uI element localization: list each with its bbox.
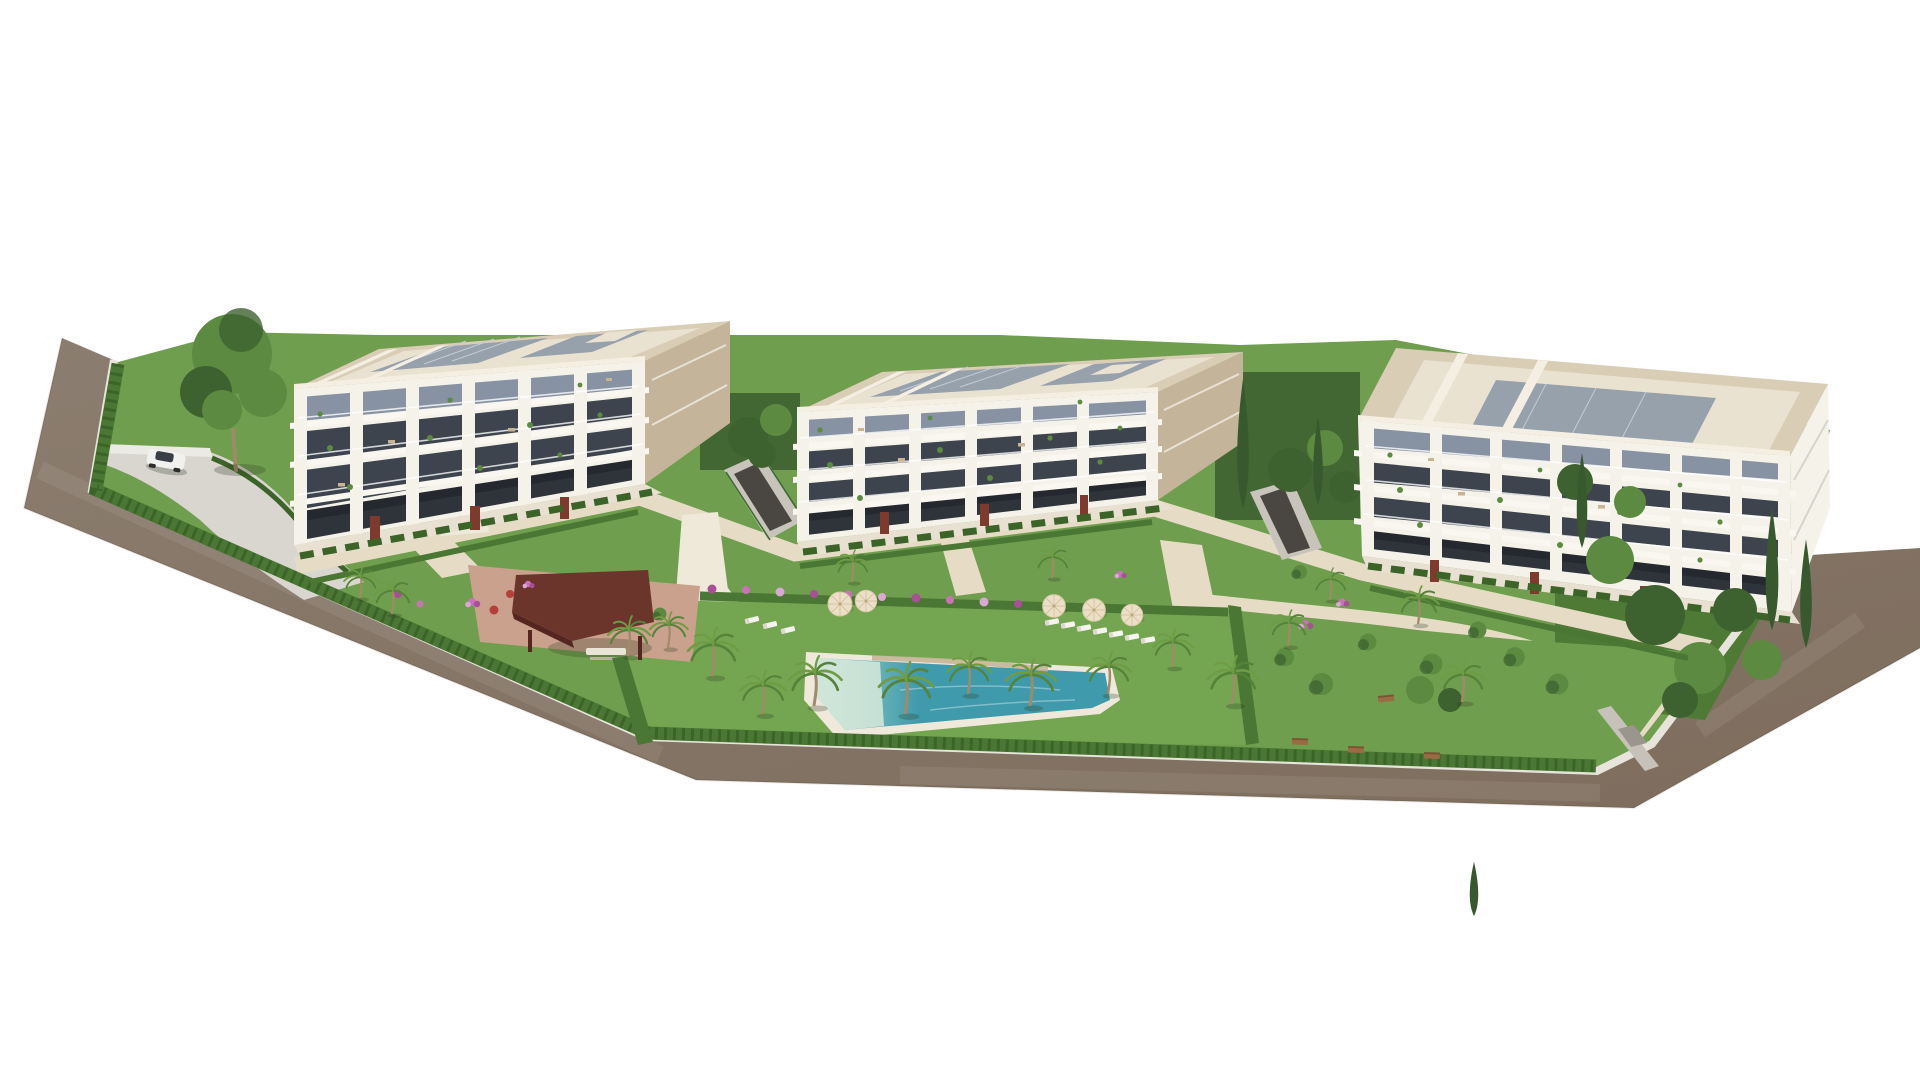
- architectural-render: [0, 0, 1920, 1080]
- render-canvas: [0, 0, 1920, 1080]
